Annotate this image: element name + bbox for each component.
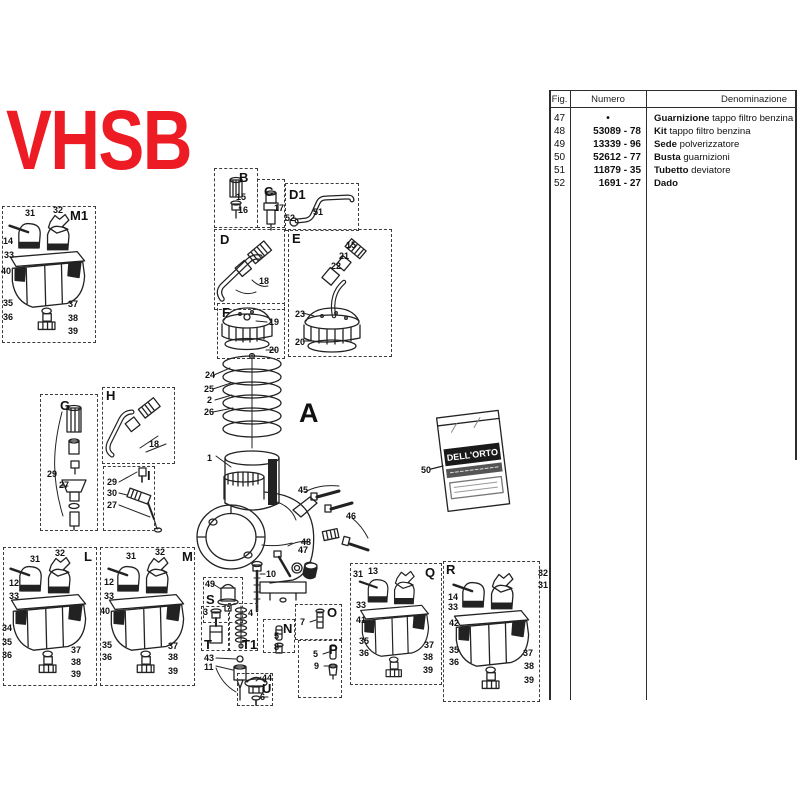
part-callout-33: 33 <box>4 251 14 260</box>
section-box-M1 <box>2 206 96 343</box>
part-callout-29: 29 <box>47 470 57 479</box>
part-callout-31: 31 <box>126 552 136 561</box>
part-callout-34: 34 <box>2 624 12 633</box>
part-callout-18: 18 <box>149 440 159 449</box>
section-label-R: R <box>446 563 455 576</box>
part-callout-14: 14 <box>3 237 13 246</box>
section-label-D: D <box>220 233 229 246</box>
section-box-M <box>100 547 195 686</box>
part-callout-35: 35 <box>449 646 459 655</box>
part-callout-1: 1 <box>207 454 212 463</box>
part-callout-6: 6 <box>260 693 265 702</box>
col-header-denominazione: Denominazione <box>646 95 791 105</box>
part-callout-30: 30 <box>107 489 117 498</box>
packet-leader-line <box>431 466 443 469</box>
gasket-packet: DELL'ORTO <box>437 410 510 511</box>
part-callout-15: 15 <box>236 193 246 202</box>
part-callout-2: 2 <box>207 396 212 405</box>
part-callout-52: 52 <box>285 214 295 223</box>
part-callout-35: 35 <box>102 641 112 650</box>
parts-46 <box>322 518 368 550</box>
part-callout-19: 19 <box>269 318 279 327</box>
brand-logo: VHSB <box>6 98 191 182</box>
col-header-numero: Numero <box>570 95 646 105</box>
col-header-fig: Fig. <box>549 95 570 105</box>
part-callout-38: 38 <box>524 662 534 671</box>
part-callout-32: 32 <box>55 549 65 558</box>
table-border-top <box>549 90 796 91</box>
table-border-right <box>795 90 797 460</box>
part-callout-5: 5 <box>313 650 318 659</box>
table-row: 4913339 - 96Sede polverizzatore <box>549 140 795 151</box>
part-callout-3: 3 <box>203 608 208 617</box>
part-callout-40: 40 <box>1 267 11 276</box>
part-callout-14: 14 <box>448 593 458 602</box>
part-callout-33: 33 <box>448 603 458 612</box>
part-callout-38: 38 <box>423 653 433 662</box>
part-callout-20: 20 <box>295 338 305 347</box>
section-label-A: A <box>299 400 319 427</box>
part-callout-36: 36 <box>3 313 13 322</box>
part-callout-36: 36 <box>2 651 12 660</box>
part-callout-37: 37 <box>523 649 533 658</box>
part-callout-18: 18 <box>259 277 269 286</box>
section-box-G <box>40 394 98 531</box>
part-callout-8: 8 <box>274 643 279 652</box>
part-callout-37: 37 <box>71 646 81 655</box>
part-callout-38: 38 <box>71 658 81 667</box>
part-callout-36: 36 <box>102 653 112 662</box>
section-label-H: H <box>106 389 115 402</box>
part-callout-29: 29 <box>107 478 117 487</box>
section-label-N: N <box>283 622 292 635</box>
part-callout-35: 35 <box>359 637 369 646</box>
part-callout-50: 50 <box>421 466 431 475</box>
table-row: 5111879 - 35Tubetto deviatore <box>549 166 795 177</box>
part-callout-41: 41 <box>356 616 366 625</box>
part-callout-17: 17 <box>274 204 284 213</box>
section-label-P: P <box>329 643 338 656</box>
table-border-header <box>549 107 796 108</box>
section-label-F: F <box>222 306 230 319</box>
spring-and-slide <box>213 354 281 511</box>
part-callout-36: 36 <box>359 649 369 658</box>
part-callout-12: 12 <box>9 579 19 588</box>
part-callout-33: 33 <box>104 592 114 601</box>
table-row: 521691 - 27Dado <box>549 179 795 190</box>
part-callout-27: 27 <box>59 481 69 490</box>
part-callout-11: 11 <box>204 663 214 672</box>
part-callout-31: 31 <box>25 209 35 218</box>
table-row: 5052612 - 77Busta guarnizioni <box>549 153 795 164</box>
table-row: 47•Guarnizione tappo filtro benzina <box>549 114 795 125</box>
section-label-D1: D1 <box>289 188 306 201</box>
part-callout-12: 12 <box>104 578 114 587</box>
part-callout-46: 46 <box>346 512 356 521</box>
part-callout-33: 33 <box>9 592 19 601</box>
part-callout-16: 16 <box>238 206 248 215</box>
part-callout-37: 37 <box>168 642 178 651</box>
section-box-L <box>3 547 97 686</box>
part-callout-39: 39 <box>71 670 81 679</box>
part-callout-47: 47 <box>298 546 308 555</box>
part-callout-25: 25 <box>204 385 214 394</box>
part-callout-37: 37 <box>68 300 78 309</box>
section-label-C: C <box>264 185 273 198</box>
section-label-T1: T1 <box>242 638 257 651</box>
part-callout-49: 49 <box>205 580 215 589</box>
section-label-M: M <box>182 550 193 563</box>
part-callout-33: 33 <box>356 601 366 610</box>
part-callout-39: 39 <box>68 327 78 336</box>
part-callout-26: 26 <box>204 408 214 417</box>
table-row: 4853089 - 78Kit tappo filtro benzina <box>549 127 795 138</box>
section-label-B: B <box>239 171 248 184</box>
part-callout-31: 31 <box>30 555 40 564</box>
part-callout-9: 9 <box>314 662 319 671</box>
part-callout-36: 36 <box>449 658 459 667</box>
part-callout-38: 38 <box>168 653 178 662</box>
section-label-O: O <box>327 606 337 619</box>
section-label-L: L <box>84 550 92 563</box>
section-label-E: E <box>292 232 301 245</box>
part-callout-42: 42 <box>449 619 459 628</box>
part-callout-39: 39 <box>168 667 178 676</box>
part-callout-40: 40 <box>100 607 110 616</box>
part-callout-10: 10 <box>266 570 276 579</box>
section-label-I: I <box>147 469 151 482</box>
part-callout-32: 32 <box>155 548 165 557</box>
part-callout-15: 15 <box>346 241 356 250</box>
part-callout-20: 20 <box>269 346 279 355</box>
part-callout-21: 21 <box>339 252 349 261</box>
part-callout-27: 27 <box>107 501 117 510</box>
section-label-G: G <box>60 399 70 412</box>
section-label-Q: Q <box>425 566 435 579</box>
part-callout-32: 32 <box>538 569 548 578</box>
section-label-T: T <box>204 638 212 651</box>
part-callout-37: 37 <box>424 641 434 650</box>
part-callout-13: 13 <box>368 567 378 576</box>
part-callout-4: 4 <box>248 609 253 618</box>
part-callout-22: 22 <box>331 262 341 271</box>
part-callout-38: 38 <box>68 314 78 323</box>
part-callout-35: 35 <box>3 299 13 308</box>
part-callout-45: 45 <box>298 486 308 495</box>
part-callout-44: 44 <box>262 674 272 683</box>
part-callout-31: 31 <box>538 581 548 590</box>
part-callout-31: 31 <box>353 570 363 579</box>
part-callout-23: 23 <box>295 310 305 319</box>
part-callout-39: 39 <box>423 666 433 675</box>
part-callout-5: 5 <box>274 632 279 641</box>
section-label-M1: M1 <box>70 209 88 222</box>
part-callout-32: 32 <box>53 206 63 215</box>
part-callout-35: 35 <box>2 638 12 647</box>
part-callout-39: 39 <box>524 676 534 685</box>
part-callout-7: 7 <box>300 618 305 627</box>
section-label-S: S <box>206 593 215 606</box>
part-callout-51: 51 <box>313 208 323 217</box>
part-callout-24: 24 <box>205 371 215 380</box>
page: DELL'ORTO VHSB Fig. Numero Denominazione… <box>0 0 800 800</box>
